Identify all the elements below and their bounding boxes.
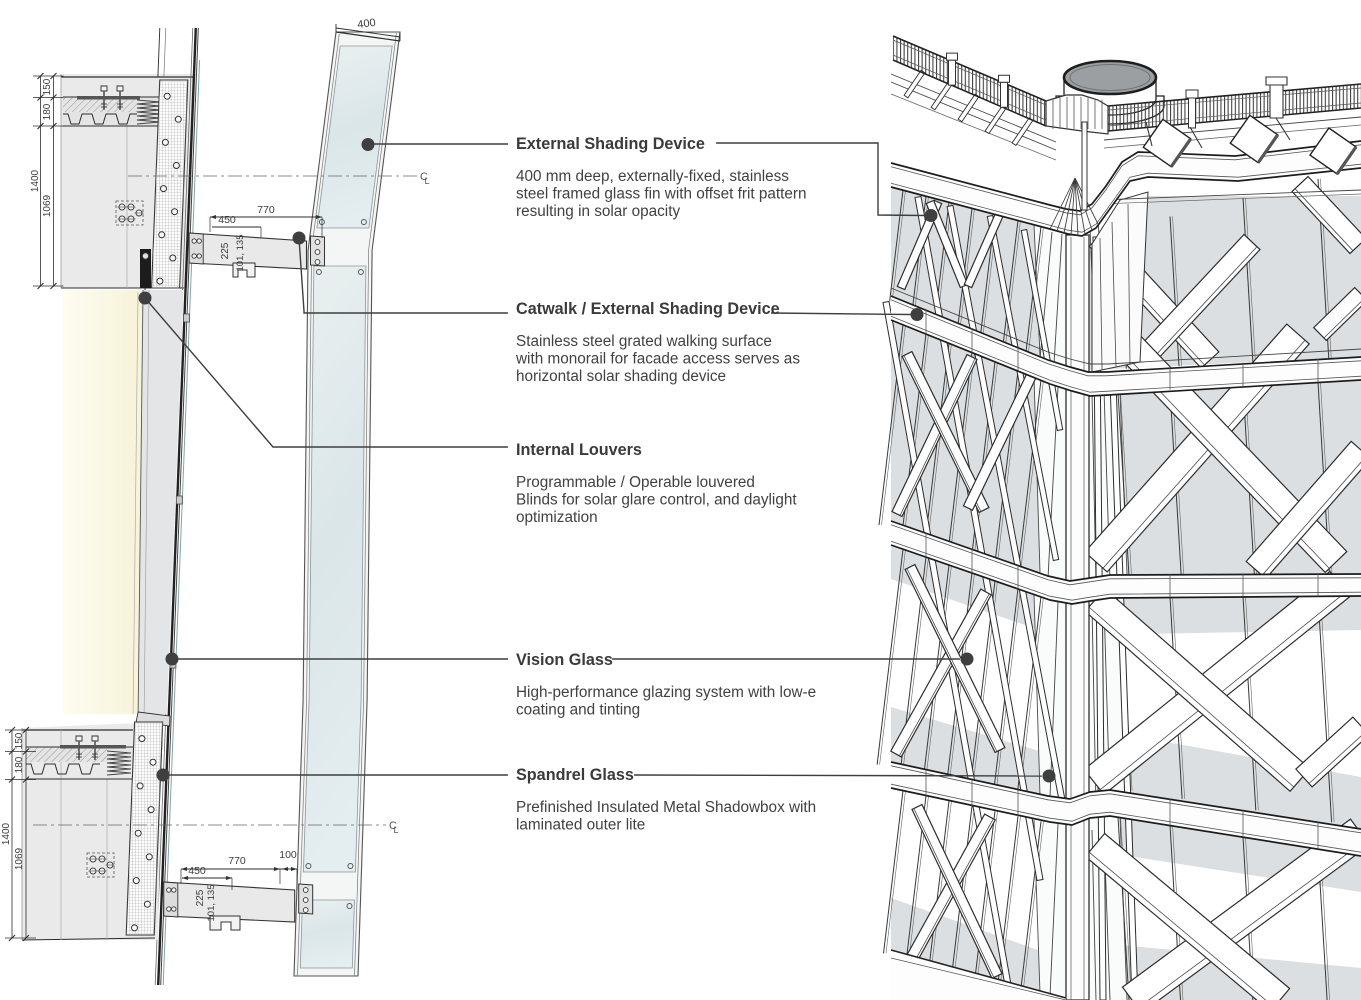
svg-text:Internal Louvers: Internal Louvers <box>516 441 642 459</box>
svg-text:steel framed glass fin with of: steel framed glass fin with offset frit … <box>516 185 807 202</box>
svg-text:Spandrel Glass: Spandrel Glass <box>516 766 634 784</box>
svg-text:100: 100 <box>279 849 297 861</box>
svg-text:laminated outer lite: laminated outer lite <box>516 816 645 833</box>
svg-text:1069: 1069 <box>14 847 25 870</box>
svg-text:Blinds for solar glare control: Blinds for solar glare control, and dayl… <box>516 491 797 508</box>
svg-text:High-performance glazing syste: High-performance glazing system with low… <box>516 684 816 701</box>
svg-text:770: 770 <box>257 204 275 216</box>
svg-text:770: 770 <box>228 855 246 867</box>
svg-text:Prefinished Insulated Metal Sh: Prefinished Insulated Metal Shadowbox wi… <box>516 799 816 816</box>
svg-text:101, 135: 101, 135 <box>235 235 246 272</box>
svg-text:1400: 1400 <box>1 822 12 845</box>
svg-text:1069: 1069 <box>42 194 53 217</box>
svg-text:400 mm deep, externally-fixed,: 400 mm deep, externally-fixed, stainless <box>516 168 789 185</box>
svg-text:Stainless steel grated walking: Stainless steel grated walking surface <box>516 333 772 350</box>
svg-text:L: L <box>393 825 398 835</box>
svg-text:225: 225 <box>220 242 231 259</box>
svg-text:450: 450 <box>218 214 236 226</box>
svg-text:resulting in solar opacity: resulting in solar opacity <box>516 203 680 220</box>
svg-text:optimization: optimization <box>516 509 598 526</box>
svg-text:horizontal solar shading devic: horizontal solar shading device <box>516 368 726 385</box>
svg-text:L: L <box>424 176 429 186</box>
svg-text:450: 450 <box>188 865 206 877</box>
svg-text:101, 135: 101, 135 <box>206 885 217 922</box>
svg-text:150: 150 <box>42 78 53 95</box>
svg-text:coating and tinting: coating and tinting <box>516 701 640 718</box>
svg-text:150: 150 <box>14 732 25 749</box>
svg-text:Vision Glass: Vision Glass <box>516 651 613 669</box>
svg-text:Catwalk / External Shading Dev: Catwalk / External Shading Device <box>516 300 780 318</box>
svg-text:External Shading Device: External Shading Device <box>516 135 705 153</box>
svg-text:180: 180 <box>14 756 25 773</box>
svg-text:Programmable / Operable louver: Programmable / Operable louvered <box>516 474 755 491</box>
svg-text:180: 180 <box>42 103 53 120</box>
svg-text:400: 400 <box>357 17 377 31</box>
svg-text:1400: 1400 <box>30 169 41 192</box>
svg-text:225: 225 <box>195 889 206 906</box>
svg-text:with monorail for facade acces: with monorail for facade access serves a… <box>515 350 800 367</box>
